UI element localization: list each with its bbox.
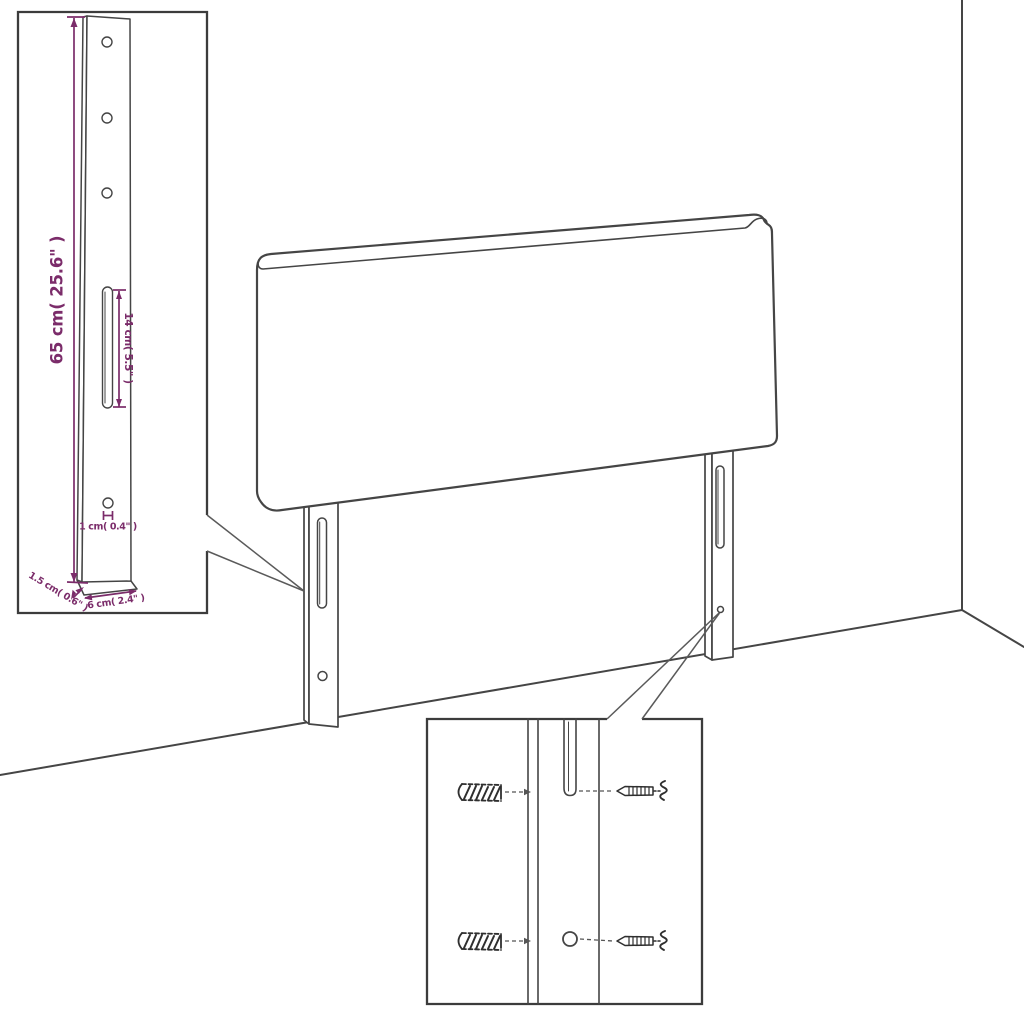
right-leg-hole (718, 607, 724, 613)
strip-slot (564, 719, 576, 796)
bracket-small-hole (103, 498, 113, 508)
bracket-hole-1 (102, 37, 112, 47)
right-leg-slot (716, 466, 724, 548)
bracket-hole-3 (102, 188, 112, 198)
floor-line-right (962, 610, 1024, 647)
leg-bracket-drawing (77, 16, 137, 595)
left-leg-hole (318, 672, 327, 681)
leg-inset-callout-lower (207, 551, 304, 591)
left-leg (304, 493, 338, 727)
bracket-hole-2 (102, 113, 112, 123)
magnified-leg-strip (528, 719, 599, 1004)
floor-line-left (0, 610, 962, 775)
leader-hole-to-screw (580, 939, 613, 941)
alignment-leaders (505, 789, 613, 944)
dim-total-height-tick-bottom (67, 582, 88, 583)
headboard-panel (257, 215, 777, 511)
strip-hole (563, 932, 577, 946)
headboard-figure (257, 215, 777, 727)
left-leg-slot (318, 518, 327, 608)
diagram-page: 65 cm( 25.6" ) 14 cm( 5.5" ) 1 cm( 0.4" … (0, 0, 1024, 1024)
mounting-inset-callout-right (642, 613, 720, 719)
screw-icon-bottom (617, 931, 667, 950)
dim-total-height-arrow-top (71, 18, 78, 27)
bracket-slot (103, 287, 113, 408)
leg-inset-callout-upper (207, 515, 304, 591)
mounting-inset-callout-left (607, 613, 719, 719)
mounting-detail-inset (427, 613, 720, 1004)
wall-anchor-icon-bottom (459, 933, 502, 950)
headboard-panel-outline (257, 215, 777, 511)
dimension-label-slot-length: 14 cm( 5.5" ) (122, 312, 134, 383)
wall-anchor-icon-top (459, 784, 502, 801)
headboard-dimension-diagram: 65 cm( 25.6" ) 14 cm( 5.5" ) 1 cm( 0.4" … (0, 0, 1024, 1024)
screw-icon-top (617, 781, 667, 800)
dimension-label-leg-width: 6 cm( 2.4" ) (87, 593, 146, 612)
dimension-label-total-height: 65 cm( 25.6" ) (48, 236, 67, 365)
dimension-label-hole-offset: 1 cm( 0.4" ) (79, 522, 137, 533)
